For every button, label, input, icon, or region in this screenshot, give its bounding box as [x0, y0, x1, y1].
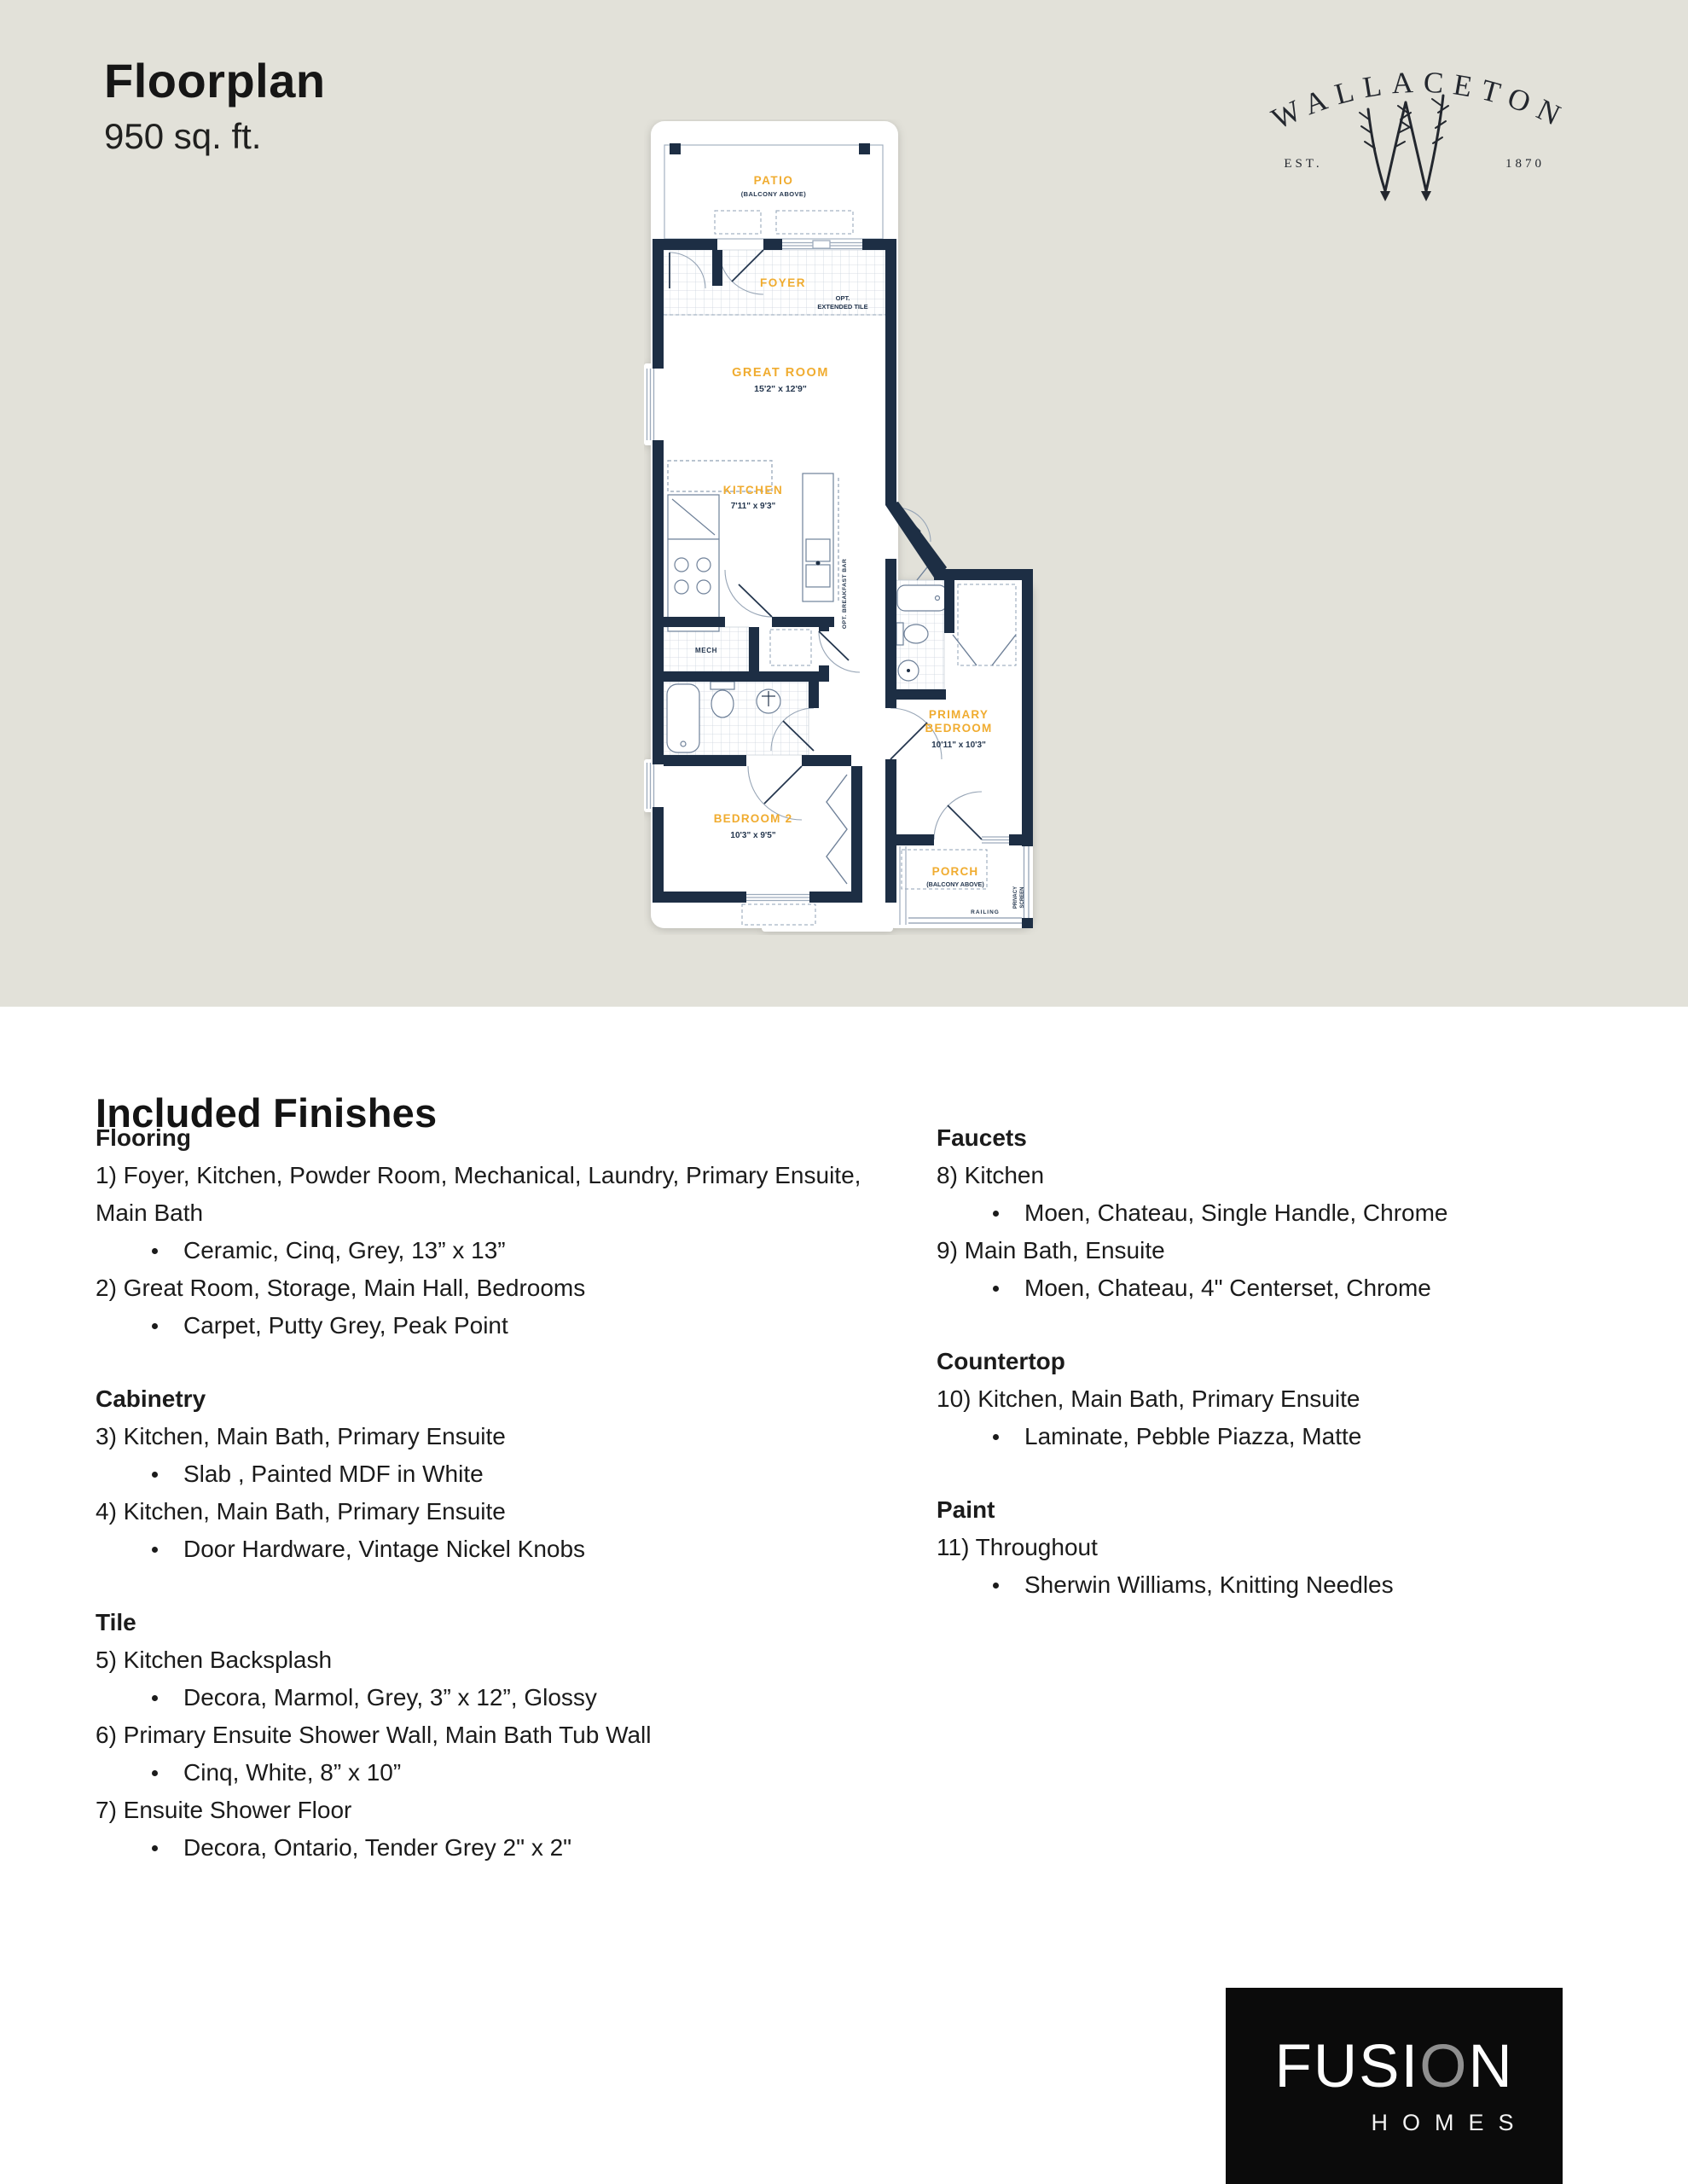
- room-label-kitchen: KITCHEN: [723, 484, 784, 497]
- room-label-primary-2: BEDROOM: [925, 722, 993, 735]
- fusion-wordmark: FUSION: [1275, 2032, 1514, 2101]
- room-label-bedroom2: BEDROOM 2: [714, 812, 793, 825]
- finish-item: Laminate, Pebble Piazza, Matte: [937, 1418, 1627, 1455]
- wallaceton-est-label: EST.: [1284, 157, 1322, 171]
- porch-note: (BALCONY ABOVE): [926, 880, 984, 888]
- privacy-screen-note-2: SCREEN: [1020, 886, 1025, 908]
- fusion-wordmark-accent-o: O: [1419, 2033, 1468, 2100]
- finish-item: Ceramic, Cinq, Grey, 13” x 13”: [96, 1232, 919, 1269]
- section-tile: Tile 5) Kitchen Backsplash Decora, Marmo…: [96, 1604, 919, 1867]
- kitchen-dims: 7'11" x 9'3": [731, 502, 776, 511]
- section-flooring: Flooring 1) Foyer, Kitchen, Powder Room,…: [96, 1119, 919, 1345]
- fusion-homes-sublabel: HOMES: [1275, 2110, 1528, 2136]
- section-countertop: Countertop 10) Kitchen, Main Bath, Prima…: [937, 1343, 1627, 1455]
- finish-item: 3) Kitchen, Main Bath, Primary Ensuite: [96, 1418, 919, 1455]
- fusion-homes-logo-inner: FUSION HOMES: [1275, 2032, 1514, 2136]
- finish-item: Sherwin Williams, Knitting Needles: [937, 1566, 1627, 1604]
- finish-item: 2) Great Room, Storage, Main Hall, Bedro…: [96, 1269, 919, 1307]
- page-title: Floorplan: [104, 53, 326, 108]
- room-label-mech: MECH: [695, 647, 717, 654]
- floorplan-drawing: PATIO (BALCONY ABOVE) FOYER OPT. EXTENDE…: [644, 119, 1040, 935]
- finish-item: Decora, Marmol, Grey, 3” x 12”, Glossy: [96, 1679, 919, 1716]
- railing-note: RAILING: [971, 909, 1000, 915]
- section-title: Faucets: [937, 1119, 1627, 1157]
- finish-item: 8) Kitchen: [937, 1157, 1627, 1194]
- finish-item: Carpet, Putty Grey, Peak Point: [96, 1307, 919, 1345]
- section-title: Countertop: [937, 1343, 1627, 1380]
- fusion-wordmark-part2: N: [1468, 2033, 1513, 2100]
- wheat-emblem-icon: [1360, 96, 1448, 201]
- finishes-right-column: Faucets 8) Kitchen Moen, Chateau, Single…: [937, 1119, 1627, 1604]
- section-paint: Paint 11) Throughout Sherwin Williams, K…: [937, 1491, 1627, 1604]
- page-subtitle: 950 sq. ft.: [104, 116, 261, 157]
- finish-item: Moen, Chateau, 4" Centerset, Chrome: [937, 1269, 1627, 1307]
- room-label-foyer: FOYER: [760, 276, 806, 289]
- finish-item: Door Hardware, Vintage Nickel Knobs: [96, 1531, 919, 1568]
- finish-item: 4) Kitchen, Main Bath, Primary Ensuite: [96, 1493, 919, 1531]
- privacy-screen-note-1: PRIVACY: [1013, 886, 1018, 909]
- section-faucets: Faucets 8) Kitchen Moen, Chateau, Single…: [937, 1119, 1627, 1307]
- finish-item: 11) Throughout: [937, 1529, 1627, 1566]
- foyer-opt-line2: EXTENDED TILE: [817, 303, 867, 311]
- bedroom2-dims: 10'3" x 9'5": [730, 831, 775, 840]
- primary-dims: 10'11" x 10'3": [931, 741, 986, 750]
- foyer-opt-line1: OPT.: [836, 294, 850, 302]
- room-label-porch: PORCH: [932, 865, 979, 878]
- wallaceton-year-label: 1870: [1505, 157, 1545, 171]
- room-label-patio: PATIO: [754, 174, 794, 187]
- finish-item: 10) Kitchen, Main Bath, Primary Ensuite: [937, 1380, 1627, 1418]
- room-label-great-room: GREAT ROOM: [732, 366, 829, 380]
- wallaceton-logo: WALLACETON EST. 1870: [1218, 24, 1622, 205]
- finish-item: 9) Main Bath, Ensuite: [937, 1232, 1627, 1269]
- room-label-primary-1: PRIMARY: [929, 708, 989, 721]
- finish-item: Slab , Painted MDF in White: [96, 1455, 919, 1493]
- section-cabinetry: Cabinetry 3) Kitchen, Main Bath, Primary…: [96, 1380, 919, 1568]
- fusion-homes-logo: FUSION HOMES: [1226, 1988, 1563, 2184]
- fusion-wordmark-part1: FUSI: [1275, 2033, 1420, 2100]
- finish-item: 6) Primary Ensuite Shower Wall, Main Bat…: [96, 1716, 919, 1754]
- section-title: Cabinetry: [96, 1380, 919, 1418]
- patio-note: (BALCONY ABOVE): [741, 190, 807, 198]
- finish-item: Decora, Ontario, Tender Grey 2" x 2": [96, 1829, 919, 1867]
- finish-item: Cinq, White, 8” x 10”: [96, 1754, 919, 1792]
- finish-item: 1) Foyer, Kitchen, Powder Room, Mechanic…: [96, 1157, 919, 1232]
- section-title: Paint: [937, 1491, 1627, 1529]
- wallaceton-logo-text: WALLACETON: [1267, 66, 1574, 136]
- finish-item: 5) Kitchen Backsplash: [96, 1641, 919, 1679]
- finishes-left-column: Flooring 1) Foyer, Kitchen, Powder Room,…: [96, 1119, 919, 1867]
- section-title: Tile: [96, 1604, 919, 1641]
- finish-item: Moen, Chateau, Single Handle, Chrome: [937, 1194, 1627, 1232]
- breakfast-bar-note: OPT. BREAKFAST BAR: [842, 559, 848, 629]
- great-room-dims: 15'2" x 12'9": [754, 384, 807, 394]
- section-title: Flooring: [96, 1119, 919, 1157]
- finish-item: 7) Ensuite Shower Floor: [96, 1792, 919, 1829]
